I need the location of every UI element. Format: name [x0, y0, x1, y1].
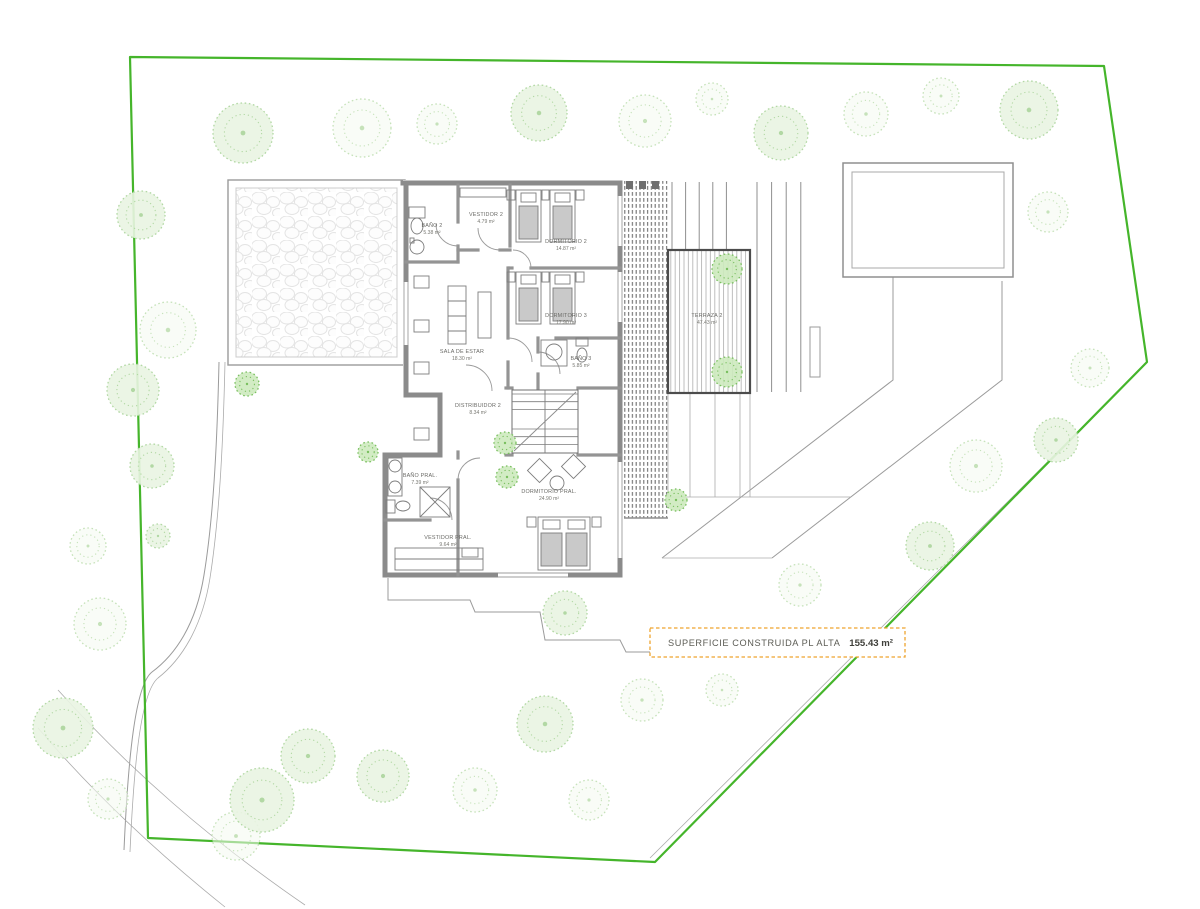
- lower-terrace-outline: [668, 393, 851, 497]
- room-area: 5.85 m²: [572, 363, 590, 369]
- summary-value: 155.43 m²: [849, 638, 893, 649]
- plant-icon: [712, 254, 742, 284]
- summary-label: SUPERFICIE CONSTRUIDA PL ALTA: [668, 638, 841, 648]
- tree-icon: [754, 106, 808, 160]
- tree-icon: [517, 696, 573, 752]
- room-area: 14.87 m²: [556, 246, 576, 252]
- floor-plan-page: BAÑO 2 5.38 m² VESTIDOR 2 4.79 m² DORMIT…: [0, 0, 1200, 909]
- tree-icon: [88, 779, 128, 819]
- tree-icon: [543, 591, 587, 635]
- room-label: BAÑO 2: [422, 222, 443, 229]
- plant-icon: [496, 466, 518, 488]
- plant-icon: [494, 432, 516, 454]
- tree-icon: [117, 191, 165, 239]
- plant-icon: [235, 372, 259, 396]
- tree-icon: [281, 729, 335, 783]
- room-label: VESTIDOR PRAL.: [424, 535, 471, 541]
- room-label: TERRAZA 2: [691, 313, 722, 319]
- tree-icon: [569, 780, 609, 820]
- garden-path: [130, 362, 225, 852]
- room-area: 8.34 m²: [469, 410, 487, 416]
- room-area: 18.30 m²: [452, 356, 472, 362]
- plant-icon: [665, 489, 687, 511]
- room-area: 17.90 m²: [556, 320, 576, 326]
- tree-icon: [844, 92, 888, 136]
- room-area: 7.39 m²: [411, 480, 429, 486]
- tree-icon: [619, 95, 671, 147]
- tree-icon: [333, 99, 391, 157]
- tree-icon: [213, 103, 273, 163]
- staircase: [512, 390, 578, 453]
- tree-icon: [146, 524, 170, 548]
- tree-icon: [130, 444, 174, 488]
- tree-icon: [923, 78, 959, 114]
- tree-icon: [1034, 418, 1078, 462]
- tree-icon: [779, 564, 821, 606]
- tree-icon: [621, 679, 663, 721]
- tree-icon: [1071, 349, 1109, 387]
- tree-icon: [417, 104, 457, 144]
- tree-icon: [1028, 192, 1068, 232]
- room-label: DORMITORIO PRAL.: [521, 489, 576, 495]
- tree-icon: [357, 750, 409, 802]
- room-area: 9.64 m²: [439, 542, 457, 548]
- pool: [843, 163, 1013, 277]
- room-label: BAÑO PRAL.: [403, 472, 437, 479]
- tree-icon: [107, 364, 159, 416]
- plant-icon: [358, 442, 378, 462]
- tree-icon: [74, 598, 126, 650]
- room-area: 24.90 m²: [539, 496, 559, 502]
- tree-icon: [706, 674, 738, 706]
- tree-icon: [906, 522, 954, 570]
- tree-icon: [511, 85, 567, 141]
- room-area: 4.79 m²: [477, 219, 495, 225]
- room-label: DISTRIBUIDOR 2: [455, 403, 501, 409]
- site-plan-drawing: BAÑO 2 5.38 m² VESTIDOR 2 4.79 m² DORMIT…: [0, 0, 1200, 909]
- pergola-louvers: [624, 181, 668, 518]
- pebble-patio: [228, 180, 405, 365]
- plant-icon: [712, 357, 742, 387]
- tree-icon: [696, 83, 728, 115]
- room-label: BAÑO 3: [571, 355, 592, 362]
- tree-icon: [453, 768, 497, 812]
- tree-icon: [33, 698, 93, 758]
- tree-icon: [230, 768, 294, 832]
- room-label: SALA DE ESTAR: [440, 349, 484, 355]
- room-label: VESTIDOR 2: [469, 212, 503, 218]
- room-label: DORMITORIO 3: [545, 313, 587, 319]
- ground-floor-element: [810, 327, 820, 377]
- tree-icon: [950, 440, 1002, 492]
- room-area: 47.43 m²: [697, 320, 717, 326]
- room-label: DORMITORIO 2: [545, 239, 587, 245]
- tree-icon: [70, 528, 106, 564]
- tree-icon: [1000, 81, 1058, 139]
- room-area: 5.38 m²: [423, 230, 441, 236]
- tree-icon: [140, 302, 196, 358]
- terrace-step-edge: [388, 577, 658, 652]
- summary-box: SUPERFICIE CONSTRUIDA PL ALTA 155.43 m²: [650, 628, 905, 657]
- stairs-path-edge: [772, 281, 1002, 558]
